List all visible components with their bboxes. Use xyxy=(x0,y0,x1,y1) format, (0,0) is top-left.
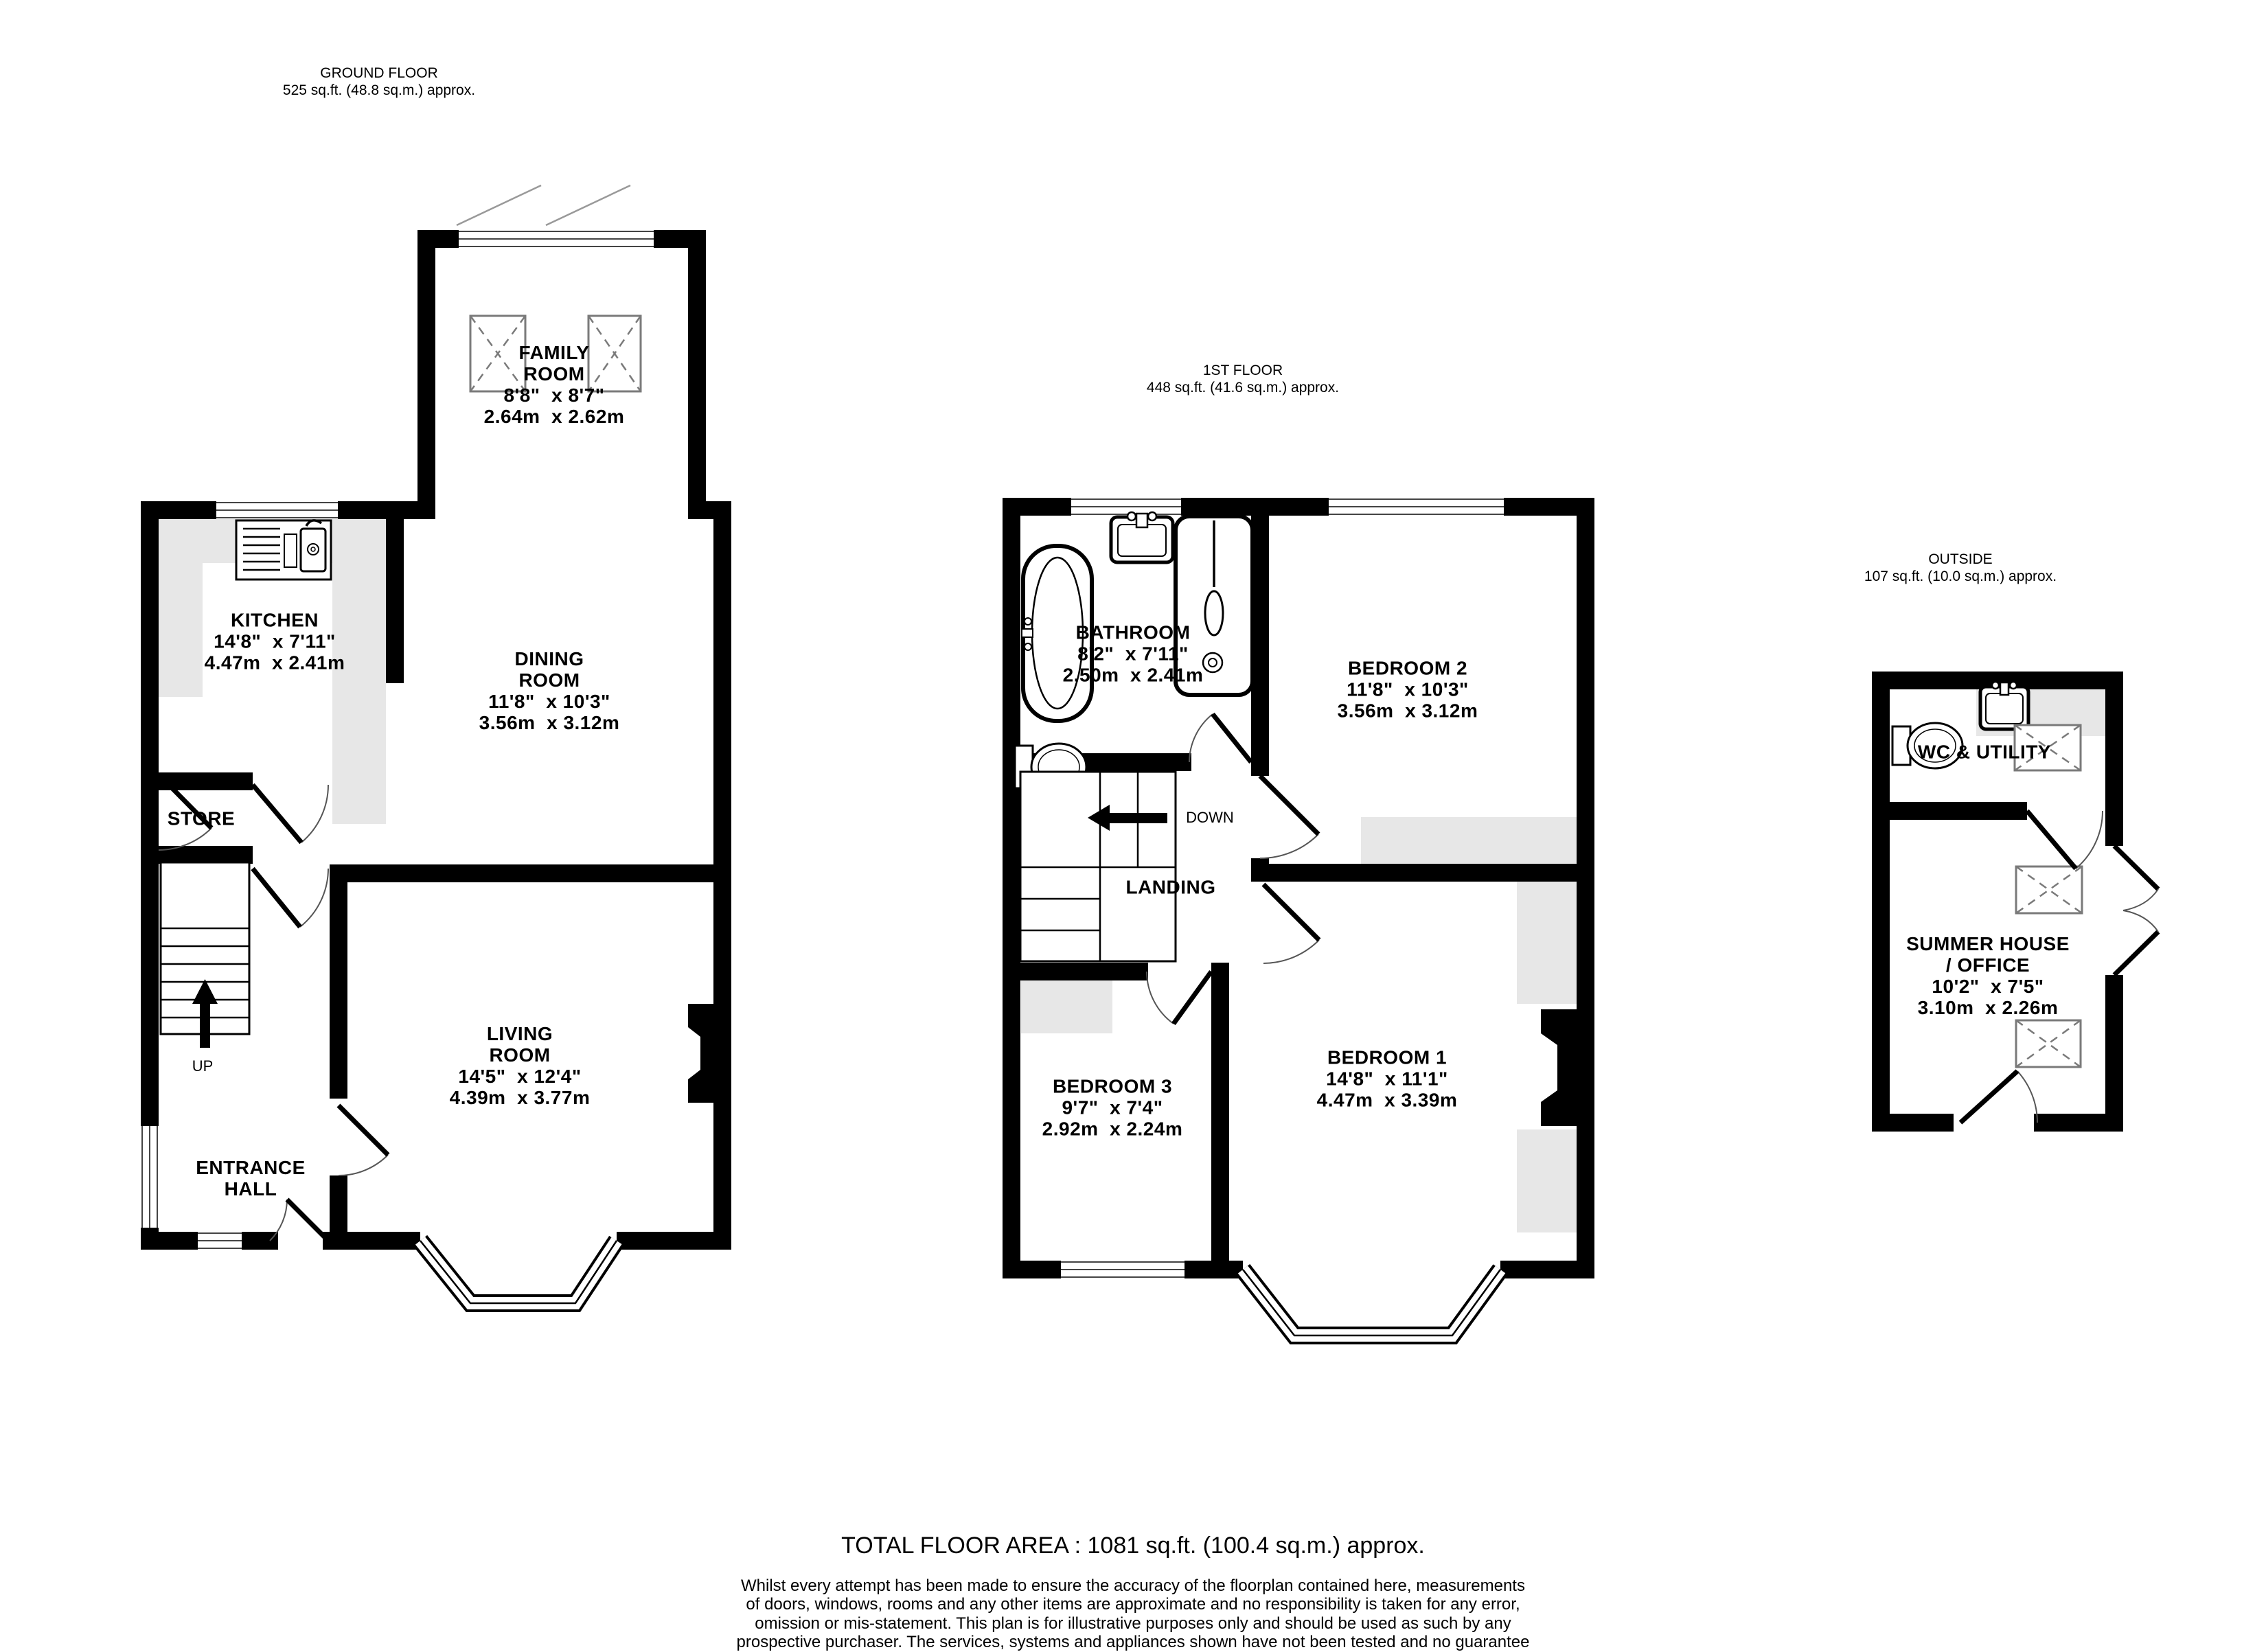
room-name: SUMMER HOUSE / OFFICE xyxy=(1906,933,2070,976)
floorplan-canvas: GROUND FLOOR 525 sq.ft. (48.8 sq.m.) app… xyxy=(0,0,2266,1652)
ground-floor-walls xyxy=(141,230,731,1250)
bedroom2-window-icon xyxy=(1329,498,1504,516)
floor-area: 448 sq.ft. (41.6 sq.m.) approx. xyxy=(1147,379,1339,396)
room-label-kitchen: KITCHEN 14'8" x 7'11" 4.47m x 2.41m xyxy=(205,610,345,674)
family-room-window-icon xyxy=(459,230,654,248)
room-size-metric: 4.47m x 3.39m xyxy=(1317,1090,1458,1111)
floor-title: 1ST FLOOR xyxy=(1147,362,1339,379)
kitchen-sink-icon xyxy=(236,520,331,580)
room-size-imperial: 10'2" x 7'5" xyxy=(1906,976,2070,997)
first-floor-header: 1ST FLOOR 448 sq.ft. (41.6 sq.m.) approx… xyxy=(1147,362,1339,396)
room-size-metric: 3.56m x 3.12m xyxy=(479,712,620,733)
room-label-wc-utility: WC & UTILITY xyxy=(1918,742,2051,763)
room-label-bedroom-1: BEDROOM 1 14'8" x 11'1" 4.47m x 3.39m xyxy=(1317,1047,1458,1111)
room-size-imperial: 8'2" x 7'11" xyxy=(1063,643,1204,665)
room-size-metric: 2.92m x 2.24m xyxy=(1042,1118,1183,1140)
floorplan-drawing xyxy=(0,0,2266,1652)
room-size-metric: 2.50m x 2.41m xyxy=(1063,665,1204,686)
room-size-imperial: 14'5" x 12'4" xyxy=(450,1066,591,1087)
room-label-store: STORE xyxy=(168,808,235,829)
bay-window-ground-icon xyxy=(420,1241,617,1303)
bedroom3-window-icon xyxy=(1061,1261,1184,1278)
room-size-metric: 2.64m x 2.62m xyxy=(484,406,625,427)
room-size-imperial: 11'8" x 10'3" xyxy=(1338,679,1478,700)
room-size-metric: 4.39m x 3.77m xyxy=(450,1087,591,1108)
room-label-summer-house: SUMMER HOUSE / OFFICE 10'2" x 7'5" 3.10m… xyxy=(1906,933,2070,1018)
stairs-up-icon xyxy=(161,862,249,1048)
hall-side-window-icon xyxy=(141,1126,159,1228)
bathroom-window-icon xyxy=(1071,498,1181,516)
room-name: BEDROOM 1 xyxy=(1317,1047,1458,1068)
room-name: FAMILY ROOM xyxy=(484,342,625,385)
room-label-bedroom-3: BEDROOM 3 9'7" x 7'4" 2.92m x 2.24m xyxy=(1042,1076,1183,1140)
ground-floor-plan xyxy=(141,185,731,1303)
utility-sink-icon xyxy=(1980,682,2028,729)
disclaimer-text: Whilst every attempt has been made to en… xyxy=(737,1557,1530,1652)
total-floor-area: TOTAL FLOOR AREA : 1081 sq.ft. (100.4 sq… xyxy=(841,1533,1425,1559)
room-name: BEDROOM 3 xyxy=(1042,1076,1183,1097)
floor-area: 107 sq.ft. (10.0 sq.m.) approx. xyxy=(1864,568,2057,585)
room-size-imperial: 14'8" x 7'11" xyxy=(205,631,345,652)
kitchen-window-icon xyxy=(216,501,338,519)
room-label-living-room: LIVING ROOM 14'5" x 12'4" 4.39m x 3.77m xyxy=(450,1023,591,1108)
stairs-down-icon xyxy=(1020,772,1176,961)
chimney-breast-ground xyxy=(688,1004,713,1103)
ground-floor-header: GROUND FLOOR 525 sq.ft. (48.8 sq.m.) app… xyxy=(283,65,475,99)
room-size-imperial: 14'8" x 11'1" xyxy=(1317,1068,1458,1090)
room-size-imperial: 11'8" x 10'3" xyxy=(479,691,620,712)
room-name: LIVING ROOM xyxy=(450,1023,591,1066)
roof-lines-icon xyxy=(457,185,630,225)
room-size-metric: 3.56m x 3.12m xyxy=(1338,700,1478,722)
room-label-entrance-hall: ENTRANCE HALL xyxy=(196,1157,306,1200)
outside-plan xyxy=(1872,672,2158,1132)
room-size-metric: 3.10m x 2.26m xyxy=(1906,997,2070,1018)
hall-front-window-icon xyxy=(198,1232,242,1250)
stairs-up-label: UP xyxy=(192,1058,214,1075)
room-name: LANDING xyxy=(1125,877,1215,898)
room-label-bedroom-2: BEDROOM 2 11'8" x 10'3" 3.56m x 3.12m xyxy=(1338,658,1478,722)
room-name: KITCHEN xyxy=(205,610,345,631)
floor-title: OUTSIDE xyxy=(1864,551,2057,568)
floor-area: 525 sq.ft. (48.8 sq.m.) approx. xyxy=(283,82,475,99)
room-size-metric: 4.47m x 2.41m xyxy=(205,652,345,674)
room-name: STORE xyxy=(168,808,235,829)
disclaimer-body: Whilst every attempt has been made to en… xyxy=(737,1576,1530,1652)
floor-title: GROUND FLOOR xyxy=(283,65,475,82)
room-name: BATHROOM xyxy=(1063,622,1204,643)
room-label-dining-room: DINING ROOM 11'8" x 10'3" 3.56m x 3.12m xyxy=(479,648,620,733)
outside-header: OUTSIDE 107 sq.ft. (10.0 sq.m.) approx. xyxy=(1864,551,2057,585)
bathroom-sink-icon xyxy=(1111,512,1173,562)
room-name: DINING ROOM xyxy=(479,648,620,691)
stairs-down-label: DOWN xyxy=(1186,810,1234,826)
room-name: ENTRANCE HALL xyxy=(196,1157,306,1200)
room-label-landing: LANDING xyxy=(1125,877,1215,898)
bay-window-first-icon xyxy=(1243,1270,1500,1335)
room-label-family-room: FAMILY ROOM 8'8" x 8'7" 2.64m x 2.62m xyxy=(484,342,625,427)
chimney-breast-first xyxy=(1541,1009,1577,1126)
room-size-imperial: 8'8" x 8'7" xyxy=(484,385,625,406)
room-name: WC & UTILITY xyxy=(1918,742,2051,763)
room-name: BEDROOM 2 xyxy=(1338,658,1478,679)
room-label-bathroom: BATHROOM 8'2" x 7'11" 2.50m x 2.41m xyxy=(1063,622,1204,686)
room-size-imperial: 9'7" x 7'4" xyxy=(1042,1097,1183,1118)
